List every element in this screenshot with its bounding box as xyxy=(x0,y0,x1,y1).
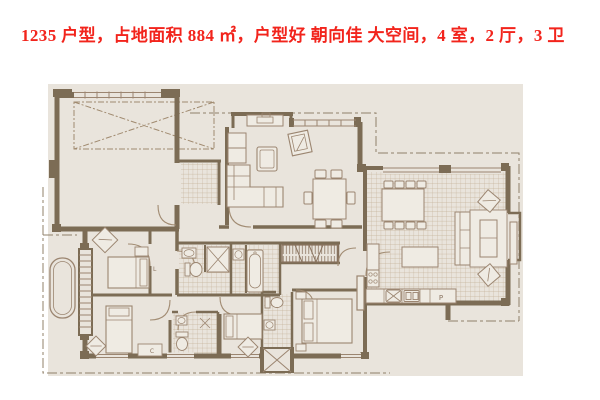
nightstand xyxy=(135,247,148,256)
toilet-symbol-4 xyxy=(265,297,283,308)
entry-foyer-tiles xyxy=(181,163,218,204)
washbasin-symbol-2 xyxy=(233,249,244,260)
kitchen-counter: P xyxy=(366,289,456,303)
washbasin-symbol xyxy=(182,248,196,258)
tv-cabinet xyxy=(247,113,283,126)
coffee-table xyxy=(257,147,277,171)
bed-c xyxy=(224,314,262,339)
void-room-top-window xyxy=(74,91,161,100)
dresser-label: C xyxy=(150,348,154,355)
fridge-label: P xyxy=(439,294,443,302)
sofa-table xyxy=(480,220,497,257)
elevator-shaft xyxy=(260,347,294,373)
sofa xyxy=(455,212,470,265)
kitchen-island xyxy=(402,247,438,267)
shower-symbol xyxy=(207,247,229,272)
toilet-symbol xyxy=(185,263,202,277)
closet-hanger-rail xyxy=(282,245,338,262)
bathtub-symbol xyxy=(247,250,263,292)
kitchen-door-leaf xyxy=(357,276,364,310)
master-bed xyxy=(296,292,352,351)
side-cabinet xyxy=(228,133,246,163)
listing-page: 1235 户型，占地面积 884 ㎡，户型好 朝向佳 大空间，4 室，2 厅，3… xyxy=(0,0,600,400)
nightstand-top xyxy=(296,292,306,299)
washbasin-symbol-3 xyxy=(176,316,187,325)
armchair xyxy=(288,130,312,156)
tv-unit-right xyxy=(510,222,517,264)
washbasin-symbol-4 xyxy=(264,320,275,330)
west-bay-window xyxy=(79,249,92,335)
nightstand-bottom xyxy=(296,344,306,351)
dining-table-long xyxy=(382,181,426,229)
tall-cabinet xyxy=(367,244,379,287)
floor-plan-svg: P C xyxy=(0,0,600,400)
toilet-symbol-3 xyxy=(176,332,188,351)
